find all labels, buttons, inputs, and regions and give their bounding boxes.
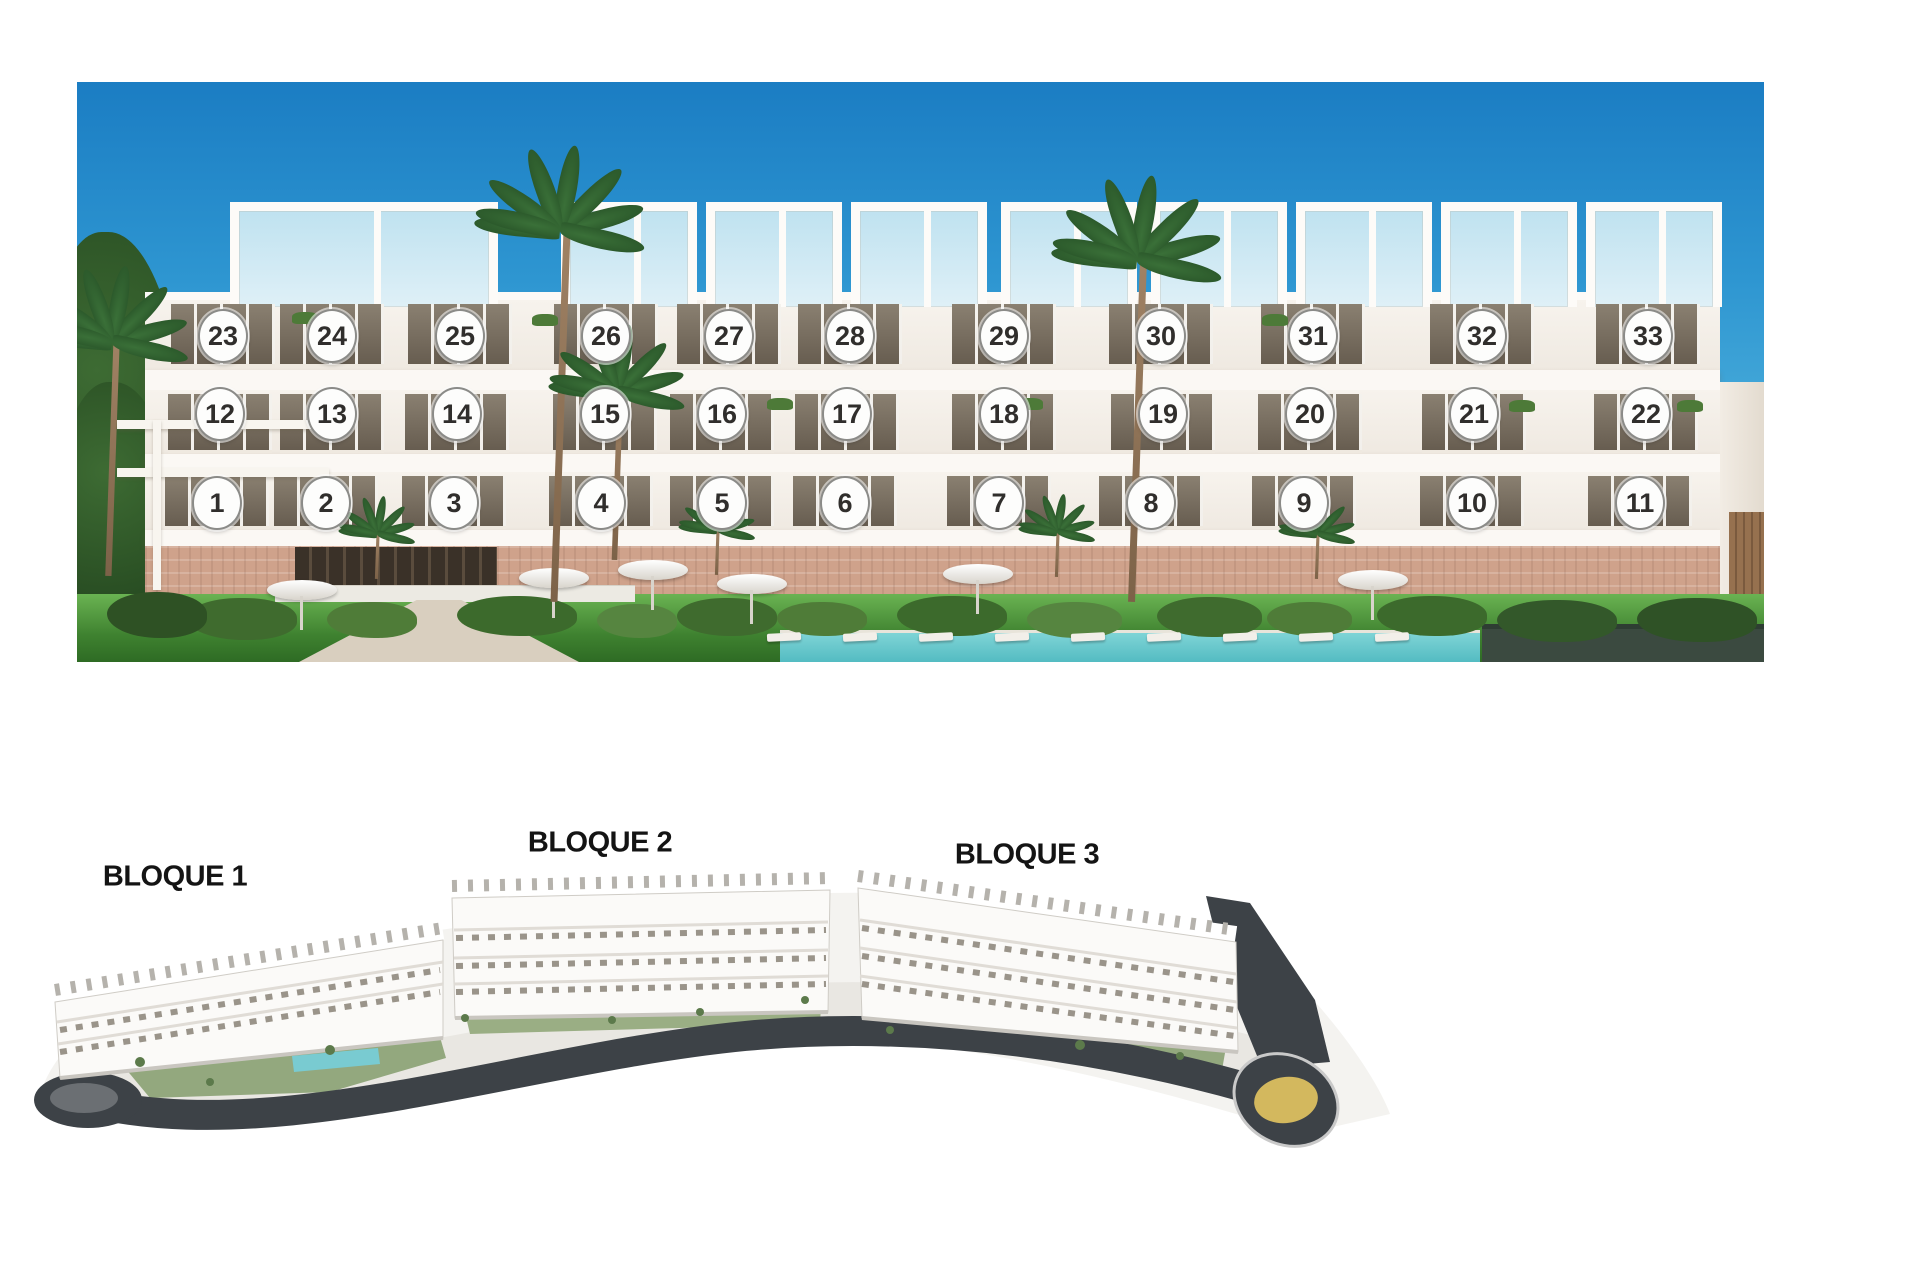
unit-number-circle: 11 [1615,476,1665,530]
page: { "canvas": {"width": 1920, "height": 12… [0,0,1920,1280]
unit-number-circle: 27 [704,309,754,363]
unit-number-circle: 20 [1285,387,1335,441]
unit-number-circle: 23 [198,309,248,363]
patio-umbrella [267,580,337,630]
bloque-building-2 [452,878,830,1018]
patio-umbrella [943,564,1013,614]
garden-bush [777,602,867,636]
bloque-label: BLOQUE 2 [528,827,672,860]
unit-number-circle: 21 [1449,387,1499,441]
unit-number-circle: 19 [1138,387,1188,441]
unit-number-circle: 4 [576,476,626,530]
unit-number-circle: 17 [822,387,872,441]
unit-number-circle: 10 [1447,476,1497,530]
unit-number-circle: 32 [1457,309,1507,363]
patio-umbrella [717,574,787,624]
roof-pergola [1586,202,1722,307]
garden-bush [1497,600,1617,642]
balcony-planter [767,398,793,410]
patio-umbrella [618,560,688,610]
roof-pergola [851,202,987,307]
unit-number-circle: 15 [580,387,630,441]
balcony-planter [1262,314,1288,326]
garden-bush [327,602,417,638]
unit-number-circle: 31 [1288,309,1338,363]
unit-number-circle: 29 [979,309,1029,363]
unit-number-circle: 24 [307,309,357,363]
balcony-planter [1509,400,1535,412]
balcony-planter [532,314,558,326]
unit-number-circle: 33 [1623,309,1673,363]
roof-pergola [230,202,498,307]
unit-number-circle: 14 [432,387,482,441]
garden-trellis-beam [117,468,329,477]
site-plan-rendering [0,860,1460,1180]
unit-number-circle: 13 [307,387,357,441]
unit-number-circle: 6 [820,476,870,530]
bloque-label: BLOQUE 1 [103,861,247,894]
garden-bush [1027,602,1122,638]
balcony-planter [1677,400,1703,412]
elevation-photo: 2324252627282930313233121314151617181920… [77,82,1764,662]
unit-number-circle: 5 [697,476,747,530]
garden-bush [1637,598,1757,642]
unit-number-circle: 8 [1126,476,1176,530]
unit-number-circle: 2 [301,476,351,530]
garden-trellis-post [153,420,161,590]
bloque-label: BLOQUE 3 [955,839,1099,872]
unit-number-circle: 18 [979,387,1029,441]
unit-number-circle: 30 [1136,309,1186,363]
garden-bush [107,592,207,638]
unit-number-circle: 28 [825,309,875,363]
road-end-loop-center [50,1083,118,1113]
unit-number-circle: 25 [435,309,485,363]
unit-number-circle: 22 [1621,387,1671,441]
unit-number-circle: 9 [1279,476,1329,530]
unit-number-circle: 1 [192,476,242,530]
roof-pergola [706,202,842,307]
roof-pergola [1296,202,1432,307]
unit-number-circle: 12 [195,387,245,441]
balcony-slab [145,454,1720,474]
garden-bush [1157,597,1262,637]
roof-pergola [1441,202,1577,307]
patio-umbrella [1338,570,1408,620]
unit-number-circle: 7 [974,476,1024,530]
unit-number-circle: 26 [581,309,631,363]
unit-number-circle: 3 [429,476,479,530]
unit-number-circle: 16 [697,387,747,441]
